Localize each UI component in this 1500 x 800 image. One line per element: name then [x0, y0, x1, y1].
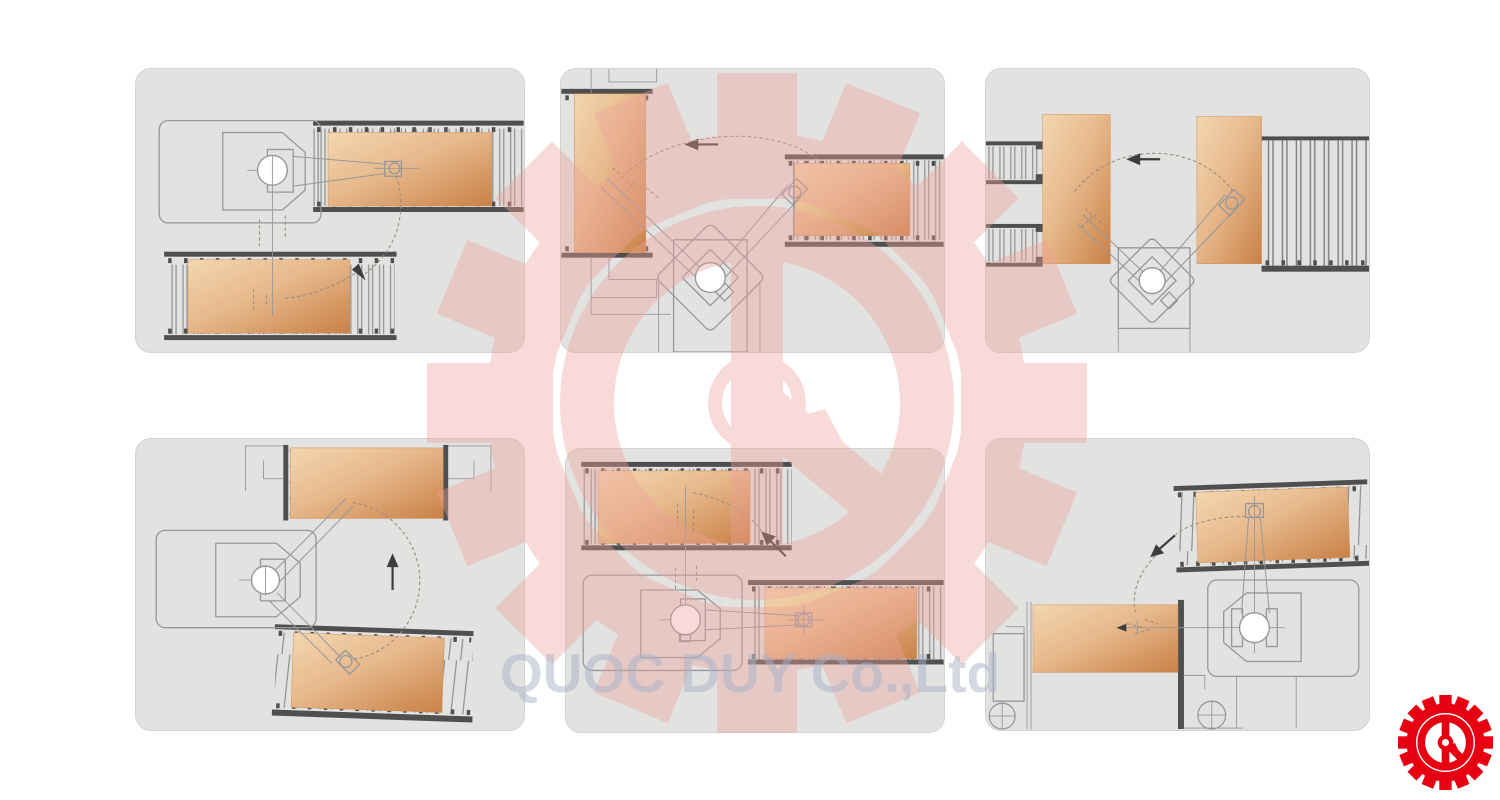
- bottom-roller-conveyor: [164, 252, 396, 340]
- wood-board: [795, 163, 910, 235]
- panel-step-4: [135, 438, 525, 731]
- pivot: [695, 263, 725, 293]
- panel-step-6: [985, 438, 1370, 731]
- top-roller-conveyor: [313, 121, 524, 212]
- wood-board: [1196, 487, 1350, 563]
- pivot: [1139, 268, 1165, 294]
- diagram-step-3: [986, 69, 1369, 352]
- wood-board-side: [1033, 605, 1178, 673]
- top-roller-conveyor: [581, 462, 792, 550]
- diagram-step-1: [136, 69, 524, 352]
- panel-step-2: [560, 68, 945, 353]
- brand-gear-logo-icon: [1398, 693, 1493, 792]
- bottom-roller-conveyor: [272, 624, 476, 722]
- panel-step-5: [565, 448, 945, 733]
- direction-arrow-icon: [1126, 153, 1140, 165]
- side-stand: [989, 600, 1242, 729]
- right-roller-conveyor: [785, 154, 944, 246]
- diagram-step-6: [986, 439, 1369, 730]
- right-roller-conveyor: [1262, 136, 1369, 271]
- top-feed-conveyor: [246, 445, 491, 520]
- wood-board: [765, 588, 917, 659]
- panel-step-1: [135, 68, 525, 353]
- diagram-step-2: [561, 69, 944, 352]
- wood-board: [188, 260, 350, 333]
- wood-board: [328, 133, 492, 206]
- pivot: [671, 605, 701, 635]
- wood-board: [574, 94, 645, 253]
- direction-arrow-icon: [387, 553, 399, 567]
- bottom-roller-conveyor: [748, 580, 944, 664]
- wood-board: [598, 471, 750, 543]
- pivot: [1240, 613, 1270, 643]
- wood-board: [290, 448, 443, 519]
- left-vertical-conveyor: [561, 69, 670, 314]
- top-roller-conveyor: [1174, 479, 1369, 572]
- diagram-step-4: [136, 439, 524, 730]
- wood-board-right: [1197, 116, 1262, 263]
- diagram-canvas: QUOC DUY Co.,Ltd: [0, 0, 1500, 800]
- left-roller-bands: [986, 141, 1043, 266]
- diagram-step-5: [566, 449, 944, 732]
- wood-board: [291, 633, 444, 713]
- panel-step-3: [985, 68, 1370, 353]
